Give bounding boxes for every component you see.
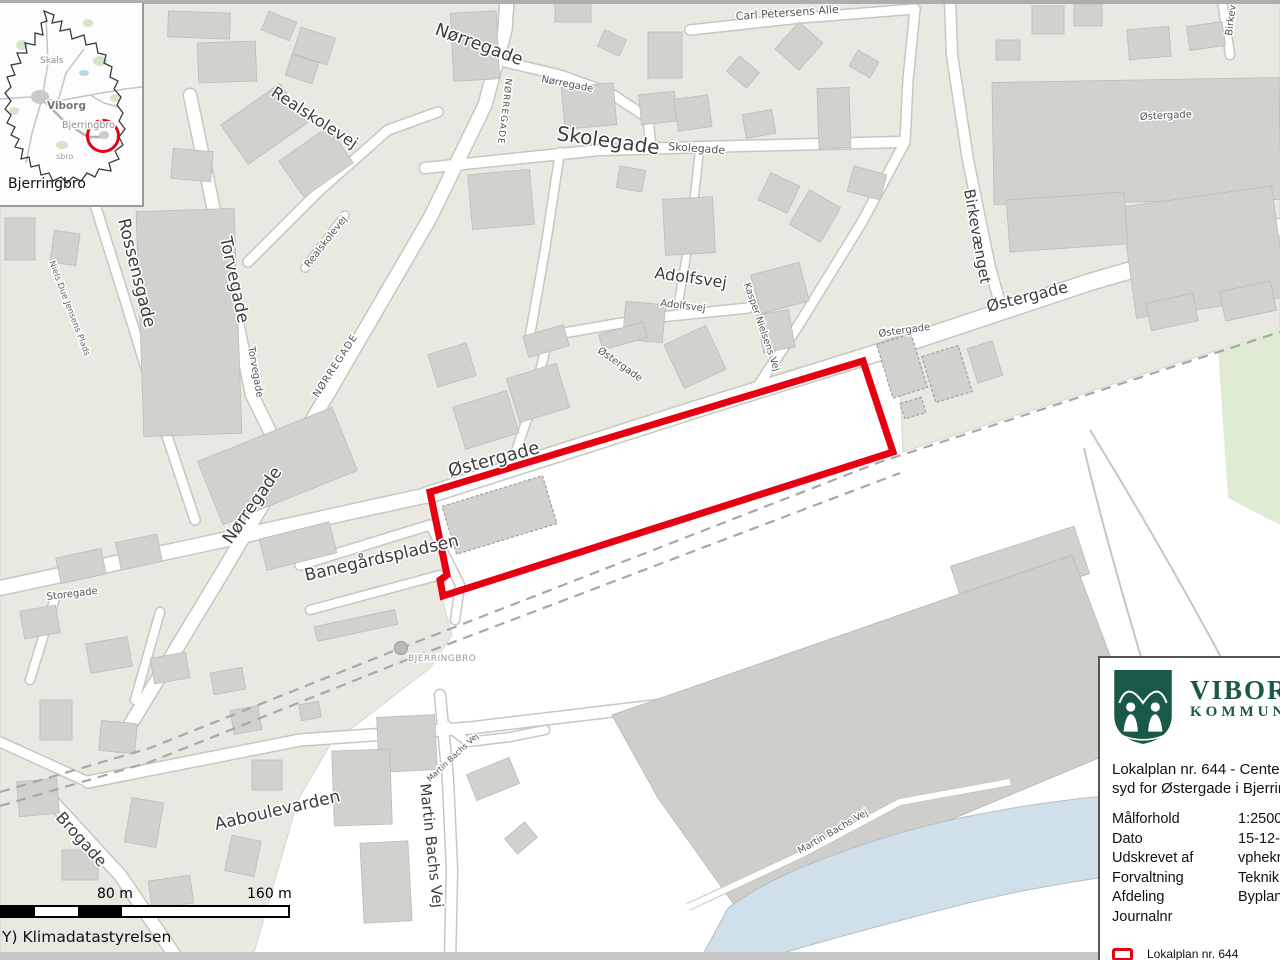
- inset-lake: [79, 70, 89, 76]
- info-row: ForvaltningTeknik & Miljø: [1112, 869, 1280, 889]
- street-label: Skals: [40, 56, 64, 66]
- plan-map-view: NørregadeNØRREGADENørregadeCarl Petersen…: [0, 0, 1280, 960]
- scale-bar: 80 m 160 m: [0, 886, 300, 922]
- scale-segment: [120, 905, 290, 918]
- info-row: Udskrevet afvphekri: [1112, 849, 1280, 869]
- brand-subname: KOMMUNE: [1190, 704, 1280, 721]
- info-row: Dato15-12-2025: [1112, 830, 1280, 850]
- info-row-value: 15-12-2025: [1238, 830, 1280, 850]
- info-row-label: Journalnr: [1112, 908, 1238, 928]
- bottom-border-strip: [0, 952, 1280, 960]
- scale-label-160: 160 m: [247, 886, 292, 902]
- lokalplan-boundary-legend-icon: [1112, 948, 1133, 960]
- info-row: AfdelingByplan: [1112, 888, 1280, 908]
- map-canvas[interactable]: NørregadeNØRREGADENørregadeCarl Petersen…: [0, 0, 1280, 960]
- plan-title-line1: Lokalplan nr. 644 - Centerområde: [1112, 760, 1280, 779]
- info-panel: VIBORG KOMMUNE Lokalplan nr. 644 - Cente…: [1098, 656, 1280, 960]
- brand-text: VIBORG KOMMUNE: [1190, 676, 1280, 721]
- attribution-text: Y) Klimadatastyrelsen: [2, 928, 171, 946]
- viborg-coat-of-arms-icon: [1112, 668, 1174, 746]
- scale-label-80: 80 m: [97, 886, 133, 902]
- info-row-value: Teknik & Miljø: [1238, 869, 1280, 889]
- info-row-label: Forvaltning: [1112, 869, 1238, 889]
- info-row-value: Byplan: [1238, 888, 1280, 908]
- info-row-value: 1:2500: [1238, 810, 1280, 830]
- info-row-label: Dato: [1112, 830, 1238, 850]
- street-label: Bjerringbro: [62, 120, 115, 131]
- legend-label: Lokalplan nr. 644: [1147, 947, 1238, 960]
- street-label: Viborg: [47, 100, 86, 112]
- top-border-strip: [0, 0, 1280, 4]
- scale-segment: [80, 905, 120, 918]
- info-row: Målforhold1:2500: [1112, 810, 1280, 830]
- street-label: BJERRINGBRO: [408, 654, 476, 664]
- street-label: sbro: [56, 152, 73, 161]
- brand-row: VIBORG KOMMUNE: [1112, 668, 1280, 746]
- plan-title-line2: syd for Østergade i Bjerringbro: [1112, 779, 1280, 798]
- brand-name: VIBORG: [1190, 676, 1280, 704]
- info-row-label: Målforhold: [1112, 810, 1238, 830]
- station-marker: [395, 642, 408, 655]
- plan-metadata: Målforhold1:2500Dato15-12-2025Udskrevet …: [1112, 810, 1280, 927]
- legend-row: Lokalplan nr. 644: [1112, 947, 1280, 960]
- scale-segment: [0, 905, 33, 918]
- info-row: Journalnr: [1112, 908, 1280, 928]
- inset-caption: Bjerringbro: [8, 176, 86, 192]
- info-row-label: Udskrevet af: [1112, 849, 1238, 869]
- plan-title: Lokalplan nr. 644 - Centerområde syd for…: [1112, 760, 1280, 798]
- scale-segment: [33, 905, 80, 918]
- inset-bjerringbro-town: [99, 131, 109, 139]
- info-row-label: Afdeling: [1112, 888, 1238, 908]
- inset-map-canvas: SkalsViborgBjerringbrosbro: [0, 3, 142, 205]
- info-row-value: vphekri: [1238, 849, 1280, 869]
